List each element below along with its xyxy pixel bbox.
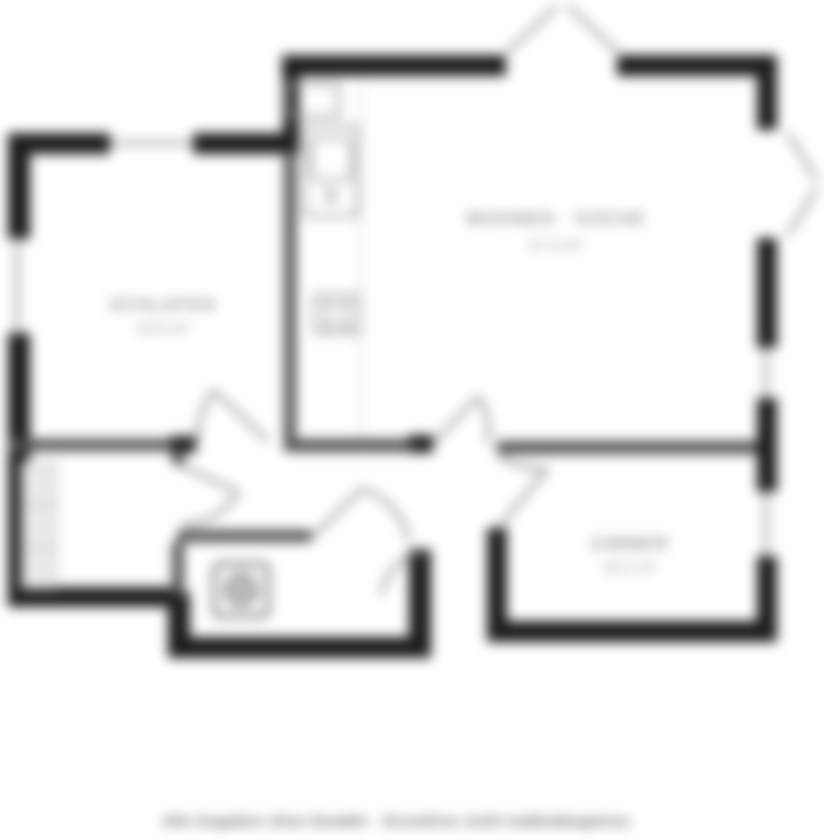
sink-drain-icon <box>326 191 336 201</box>
windows <box>17 143 766 554</box>
room-area-room-2: 10,2 m² <box>603 559 657 575</box>
floorplan-page: SCHLAFEN WOHNEN · KÜCHE ZIMMER 13,9 m² 2… <box>0 0 824 840</box>
wall-segment <box>757 238 777 348</box>
stove <box>315 295 359 333</box>
room-label-living-kitchen: WOHNEN · KÜCHE <box>466 209 646 228</box>
wardrobe-group <box>22 462 56 588</box>
partition-segment <box>172 451 184 465</box>
partition-segment <box>8 439 172 451</box>
door-swing <box>198 391 214 441</box>
room-area-living-kitchen: 27,5 m² <box>529 237 583 253</box>
room-areas: 13,9 m² 27,5 m² 10,2 m² <box>136 237 657 575</box>
appliance-group <box>214 564 268 616</box>
room-label-bedroom: SCHLAFEN <box>110 295 217 314</box>
door-leaf <box>788 133 817 181</box>
wall-segment <box>617 55 777 76</box>
watermark-text: Alle Angaben ohne Gewähr · Grundriss nic… <box>162 813 630 830</box>
partition-segment <box>284 439 412 452</box>
wall-segment <box>8 587 178 607</box>
wall-segment <box>283 57 299 155</box>
door-leaf <box>788 188 817 235</box>
floorplan-drawing: SCHLAFEN WOHNEN · KÜCHE ZIMMER 13,9 m² 2… <box>0 0 824 840</box>
wall-post <box>170 436 196 453</box>
kitchen-sink <box>311 138 351 180</box>
room-label-room-2: ZIMMER <box>590 534 669 553</box>
washing-machine <box>214 564 268 616</box>
wall-segment <box>8 133 30 239</box>
wall-segment <box>409 549 431 658</box>
door-leaf <box>433 397 478 443</box>
caption-group: Alle Angaben ohne Gewähr · Grundriss nic… <box>162 813 630 830</box>
floorplan-blur-layer: SCHLAFEN WOHNEN · KÜCHE ZIMMER 13,9 m² 2… <box>0 0 824 840</box>
washing-machine-door-icon <box>234 583 248 597</box>
wall-segment <box>193 133 292 154</box>
partition-segment <box>497 441 757 454</box>
door-leaf <box>568 6 618 52</box>
burner-icon <box>324 302 332 310</box>
wall-segment <box>487 528 507 642</box>
door-leaf <box>214 391 268 441</box>
outer-walls <box>8 55 777 658</box>
burner-icon <box>342 302 350 310</box>
wall-segment <box>487 621 777 642</box>
partition-segment <box>284 150 296 440</box>
wall-segment <box>757 398 777 492</box>
wall-segment <box>168 637 431 658</box>
door-leaf <box>182 466 238 492</box>
door-leaf <box>311 489 362 538</box>
wall-segment <box>757 55 777 130</box>
wardrobe <box>22 462 56 588</box>
door-swing <box>500 456 547 469</box>
wall-segment <box>282 55 506 76</box>
room-area-bedroom: 13,9 m² <box>136 320 190 336</box>
burner-icon <box>342 320 350 328</box>
washing-machine-door-icon <box>226 575 256 605</box>
partition-segment <box>172 542 184 597</box>
door-swing <box>478 397 489 443</box>
room-names: SCHLAFEN WOHNEN · KÜCHE ZIMMER <box>110 209 670 553</box>
door-leaf <box>507 6 557 52</box>
partition-segment <box>178 530 311 542</box>
door-swing <box>362 489 409 540</box>
doors <box>182 6 817 595</box>
door-swing <box>182 492 238 524</box>
door-leaf <box>500 469 547 526</box>
burner-icon <box>324 320 332 328</box>
